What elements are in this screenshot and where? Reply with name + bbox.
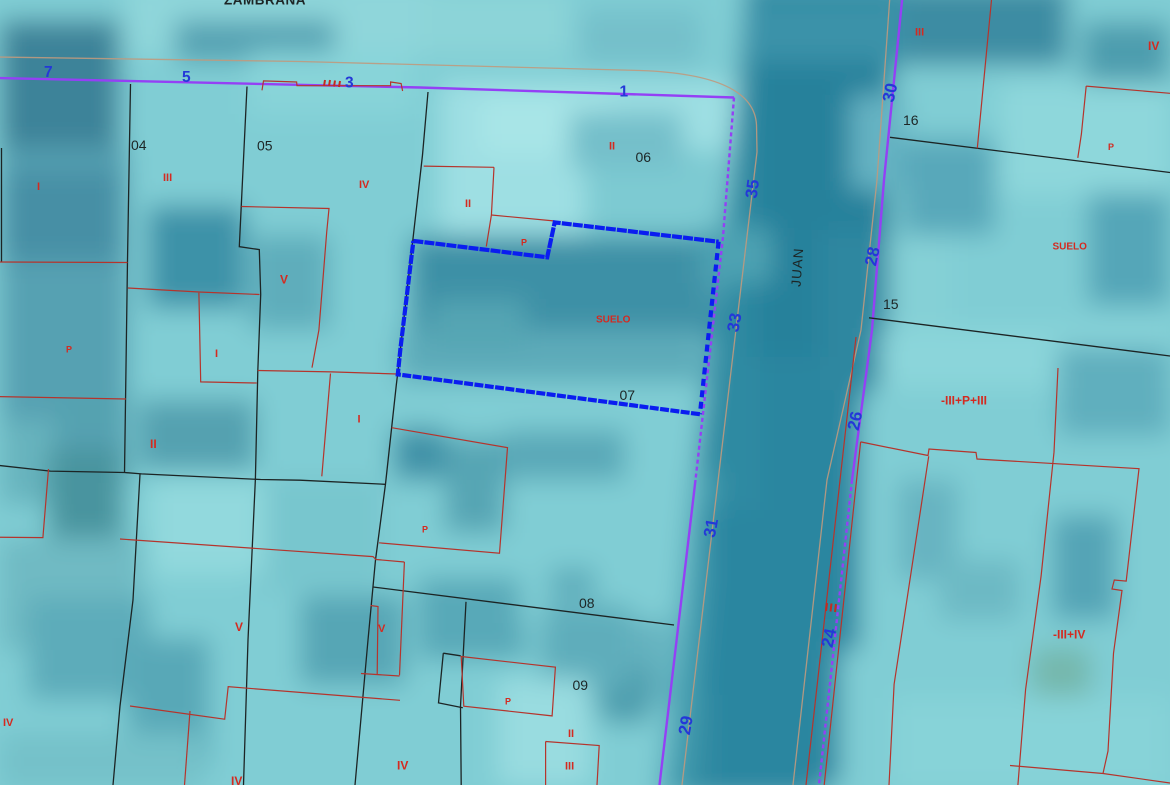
svg-text:04: 04 xyxy=(131,137,147,153)
svg-text:V: V xyxy=(280,273,288,287)
svg-text:I: I xyxy=(215,348,218,360)
svg-text:V: V xyxy=(235,620,243,634)
svg-text:05: 05 xyxy=(257,138,273,154)
svg-text:5: 5 xyxy=(182,69,191,86)
svg-text:SUELO: SUELO xyxy=(596,315,631,326)
svg-text:16: 16 xyxy=(903,112,919,128)
svg-text:I: I xyxy=(358,414,361,426)
svg-text:07: 07 xyxy=(620,387,636,403)
svg-text:P: P xyxy=(66,345,72,355)
svg-text:IV: IV xyxy=(231,774,242,785)
svg-text:3: 3 xyxy=(345,75,354,92)
svg-text:P: P xyxy=(422,525,428,535)
svg-text:I: I xyxy=(37,181,40,193)
svg-text:III: III xyxy=(163,172,172,184)
svg-text:IV: IV xyxy=(3,717,14,729)
svg-text:P: P xyxy=(505,697,511,707)
svg-text:28: 28 xyxy=(861,245,884,267)
svg-text:IV: IV xyxy=(397,759,408,773)
svg-text:P: P xyxy=(1108,142,1114,152)
svg-text:33: 33 xyxy=(724,311,746,333)
svg-text:JUAN: JUAN xyxy=(789,247,807,287)
svg-text:III: III xyxy=(565,761,574,773)
svg-text:1: 1 xyxy=(620,84,629,101)
svg-text:IV: IV xyxy=(359,179,370,191)
svg-text:-III+IV: -III+IV xyxy=(1053,628,1085,642)
svg-text:II: II xyxy=(465,198,471,210)
svg-text:II: II xyxy=(609,141,615,153)
svg-text:26: 26 xyxy=(844,410,867,432)
svg-text:IV: IV xyxy=(1148,39,1159,53)
svg-text:09: 09 xyxy=(573,677,589,693)
svg-text:II: II xyxy=(150,437,157,451)
svg-text:SUELO: SUELO xyxy=(1053,242,1088,253)
svg-text:30: 30 xyxy=(879,81,902,103)
svg-text:-III+P+III: -III+P+III xyxy=(941,394,987,408)
svg-text:15: 15 xyxy=(883,296,899,312)
svg-text:P: P xyxy=(521,238,527,248)
svg-text:7: 7 xyxy=(44,64,53,81)
svg-text:III: III xyxy=(915,27,924,39)
svg-text:II: II xyxy=(568,728,574,740)
svg-text:06: 06 xyxy=(636,149,652,165)
svg-text:35: 35 xyxy=(742,178,763,199)
svg-text:08: 08 xyxy=(579,595,595,611)
svg-text:31: 31 xyxy=(700,517,722,539)
svg-text:29: 29 xyxy=(675,714,697,736)
svg-text:ZAMBRANA: ZAMBRANA xyxy=(224,0,306,8)
svg-text:V: V xyxy=(378,623,386,635)
